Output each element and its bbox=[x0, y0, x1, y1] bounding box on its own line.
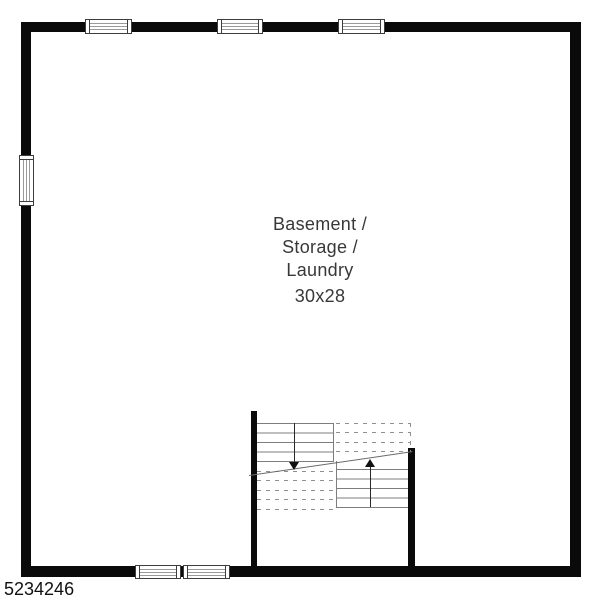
window-glazing-line bbox=[90, 26, 127, 27]
window-mullion bbox=[20, 201, 33, 202]
window-glazing-line bbox=[343, 26, 380, 27]
window-top-3 bbox=[338, 19, 385, 34]
room-dimensions: 30x28 bbox=[230, 285, 410, 308]
window-mullion bbox=[176, 566, 177, 578]
stair-tread-line-dashed bbox=[257, 499, 333, 500]
window-left bbox=[19, 155, 34, 206]
room-label-line: Basement / bbox=[273, 214, 367, 234]
stair-treads-up-flight bbox=[336, 469, 408, 508]
window-mullion bbox=[127, 20, 128, 33]
stair-tread-line-dashed bbox=[336, 432, 411, 433]
stair-tread-line-dashed bbox=[336, 451, 408, 452]
window-top-1 bbox=[85, 19, 132, 34]
stair-down-arrow bbox=[294, 423, 295, 462]
window-glazing-line bbox=[222, 23, 258, 24]
window-glazing-line bbox=[343, 23, 380, 24]
window-mullion bbox=[258, 20, 259, 33]
room-label-line: Storage / bbox=[282, 237, 358, 257]
window-glazing-line bbox=[26, 160, 27, 201]
window-glazing-line bbox=[90, 23, 127, 24]
exterior-wall-bottom bbox=[21, 566, 581, 577]
window-bottom-1 bbox=[135, 565, 181, 579]
window-mullion bbox=[225, 566, 226, 578]
stair-tread-line-dashed bbox=[336, 423, 411, 424]
window-glazing-line bbox=[188, 569, 225, 570]
room-label-line: Laundry bbox=[286, 260, 353, 280]
window-glazing-line bbox=[140, 575, 176, 576]
window-glazing-line bbox=[222, 29, 258, 30]
stair-treads-down-flight bbox=[257, 423, 334, 462]
window-mullion bbox=[380, 20, 381, 33]
window-glazing-line bbox=[90, 29, 127, 30]
window-glazing-line bbox=[188, 575, 225, 576]
listing-number: 5234246 bbox=[4, 580, 74, 598]
window-glazing-line bbox=[140, 569, 176, 570]
stair-tread-line-dashed bbox=[257, 490, 333, 491]
stair-tread-line-dashed bbox=[257, 480, 333, 481]
stair-tread-line-dashed bbox=[336, 442, 411, 443]
exterior-wall-right bbox=[570, 22, 581, 577]
window-top-2 bbox=[217, 19, 263, 34]
exterior-wall-left bbox=[21, 22, 31, 577]
window-glazing-line bbox=[188, 572, 225, 573]
arrow-down-icon bbox=[289, 462, 299, 470]
stair-stringer-line bbox=[336, 461, 337, 507]
window-glazing-line bbox=[23, 160, 24, 201]
stair-up-arrow bbox=[370, 467, 371, 507]
floor-plan: Basement / Storage / Laundry 30x28 52342… bbox=[0, 0, 600, 600]
window-glazing-line bbox=[343, 29, 380, 30]
stair-wall-right bbox=[408, 448, 415, 566]
stair-edge-dashed bbox=[410, 423, 411, 452]
window-glazing-line bbox=[222, 26, 258, 27]
room-label: Basement / Storage / Laundry 30x28 bbox=[230, 213, 410, 308]
window-glazing-line bbox=[140, 572, 176, 573]
window-glazing-line bbox=[29, 160, 30, 201]
window-bottom-2 bbox=[183, 565, 230, 579]
arrow-up-icon bbox=[365, 459, 375, 467]
stair-tread-line-dashed bbox=[257, 509, 333, 510]
